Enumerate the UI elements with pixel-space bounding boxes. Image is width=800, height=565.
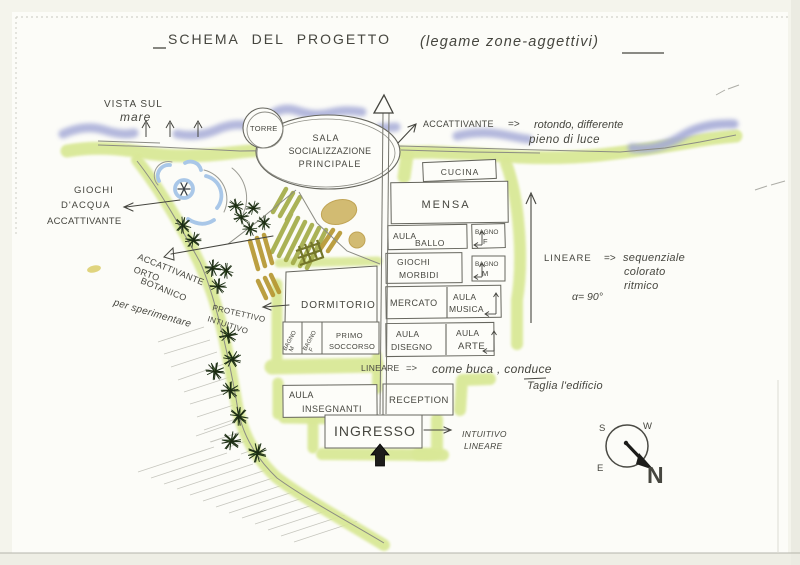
- svg-text:=>: =>: [604, 253, 616, 264]
- svg-text:LINEARE: LINEARE: [464, 441, 503, 451]
- svg-text:N: N: [647, 462, 664, 488]
- svg-text:M: M: [482, 269, 488, 278]
- svg-text:F: F: [483, 237, 488, 246]
- svg-text:colorato: colorato: [624, 266, 666, 278]
- svg-text:INTUITIVO: INTUITIVO: [462, 429, 507, 439]
- svg-text:come buca , conduce: come buca , conduce: [432, 362, 552, 376]
- svg-text:α= 90°: α= 90°: [572, 291, 603, 303]
- svg-text:AULA: AULA: [453, 292, 476, 302]
- svg-text:PRIMO: PRIMO: [336, 331, 363, 340]
- svg-text:AULA: AULA: [289, 390, 314, 400]
- svg-text:E: E: [597, 463, 603, 474]
- svg-text:(legame zone-aggettivi): (legame zone-aggettivi): [420, 34, 599, 50]
- svg-text:MERCATO: MERCATO: [390, 298, 438, 308]
- svg-text:=>: =>: [406, 363, 418, 374]
- svg-text:TORRE: TORRE: [250, 124, 278, 133]
- svg-text:SALA: SALA: [312, 133, 339, 143]
- svg-text:ARTE: ARTE: [458, 341, 485, 352]
- svg-text:BALLO: BALLO: [415, 238, 445, 248]
- svg-text:sequenziale: sequenziale: [623, 252, 685, 264]
- svg-text:DISEGNO: DISEGNO: [391, 342, 432, 352]
- svg-text:INGRESSO: INGRESSO: [334, 423, 416, 439]
- svg-text:GIOCHI: GIOCHI: [397, 257, 430, 267]
- svg-text:S: S: [599, 423, 605, 434]
- svg-text:W: W: [643, 421, 652, 432]
- svg-text:PRINCIPALE: PRINCIPALE: [299, 159, 362, 169]
- svg-text:ritmico: ritmico: [624, 280, 659, 292]
- svg-text:MORBIDI: MORBIDI: [399, 270, 439, 280]
- svg-text:BAGNO: BAGNO: [475, 229, 498, 236]
- svg-text:BAGNO: BAGNO: [475, 261, 498, 268]
- svg-text:INSEGNANTI: INSEGNANTI: [302, 404, 362, 414]
- svg-text:RECEPTION: RECEPTION: [389, 395, 449, 406]
- svg-text:LINEARE: LINEARE: [544, 253, 592, 264]
- svg-text:SOCIALIZZAZIONE: SOCIALIZZAZIONE: [289, 146, 372, 156]
- svg-text:AULA: AULA: [393, 231, 416, 241]
- svg-text:D'ACQUA: D'ACQUA: [61, 200, 110, 211]
- svg-text:ACCATTIVANTE: ACCATTIVANTE: [47, 216, 122, 227]
- svg-text:mare: mare: [120, 110, 151, 124]
- svg-text:LINEARE: LINEARE: [361, 363, 400, 373]
- svg-text:pieno di luce: pieno di luce: [528, 134, 600, 146]
- svg-text:MUSICA: MUSICA: [449, 304, 484, 314]
- svg-text:SOCCORSO: SOCCORSO: [329, 342, 375, 351]
- svg-text:AULA: AULA: [456, 328, 479, 338]
- svg-text:Taglia l'edificio: Taglia l'edificio: [527, 380, 603, 392]
- svg-text:=>: =>: [508, 119, 520, 130]
- svg-text:DORMITORIO: DORMITORIO: [301, 300, 376, 311]
- svg-text:ACCATTIVANTE: ACCATTIVANTE: [423, 119, 494, 129]
- svg-text:rotondo, differente: rotondo, differente: [534, 119, 623, 131]
- svg-text:VISTA SUL: VISTA SUL: [104, 99, 163, 110]
- svg-text:CUCINA: CUCINA: [441, 167, 480, 177]
- svg-text:AULA: AULA: [396, 329, 419, 339]
- svg-text:SCHEMA DEL PROGETTO: SCHEMA DEL PROGETTO: [168, 31, 391, 47]
- svg-text:MENSA: MENSA: [421, 199, 470, 211]
- svg-text:GIOCHI: GIOCHI: [74, 185, 114, 196]
